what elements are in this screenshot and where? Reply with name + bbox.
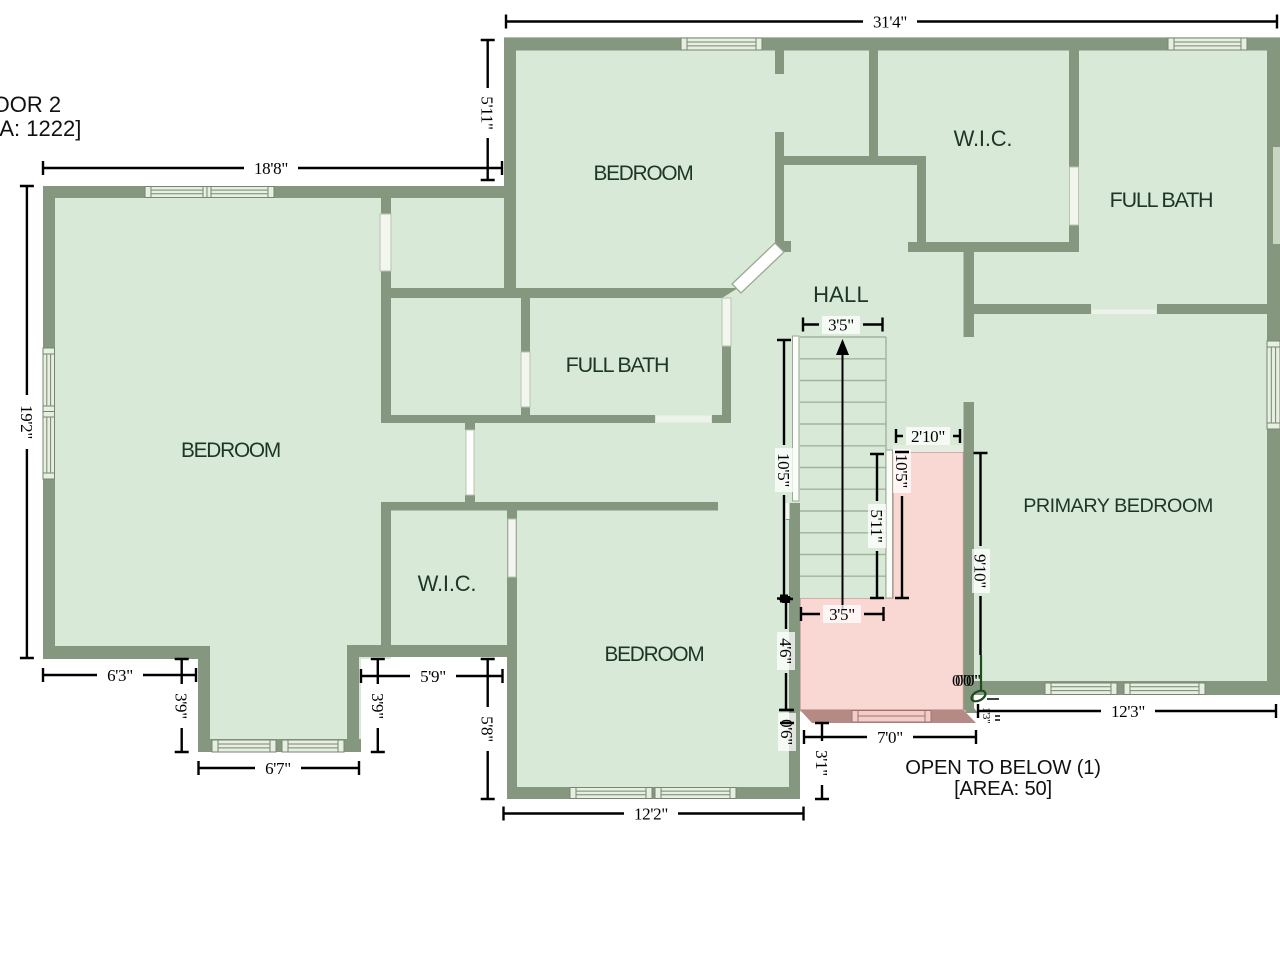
svg-text:FULL BATH: FULL BATH bbox=[1110, 188, 1213, 212]
svg-text:BEDROOM: BEDROOM bbox=[604, 643, 703, 666]
svg-text:W.I.C.: W.I.C. bbox=[954, 126, 1013, 151]
svg-text:BEDROOM: BEDROOM bbox=[181, 439, 280, 462]
svg-text:5'11": 5'11" bbox=[478, 96, 497, 129]
svg-text:HALL: HALL bbox=[813, 282, 869, 307]
svg-text:0'6": 0'6" bbox=[777, 719, 796, 745]
svg-text:1'3": 1'3" bbox=[980, 707, 992, 723]
svg-text:19'2": 19'2" bbox=[17, 405, 36, 439]
svg-text:5'9": 5'9" bbox=[420, 667, 446, 686]
svg-text:BEDROOM: BEDROOM bbox=[593, 162, 692, 185]
svg-text:12'2": 12'2" bbox=[634, 805, 668, 824]
svg-text:3'1": 3'1" bbox=[812, 750, 831, 776]
svg-text:FULL BATH: FULL BATH bbox=[566, 353, 669, 377]
svg-text:18'8": 18'8" bbox=[254, 159, 288, 178]
svg-text:10'5": 10'5" bbox=[774, 453, 793, 487]
svg-text:FLOOR 2: FLOOR 2 bbox=[0, 92, 61, 117]
svg-text:[AREA: 50]: [AREA: 50] bbox=[954, 778, 1052, 800]
svg-text:6'7": 6'7" bbox=[265, 759, 291, 778]
svg-text:5'11": 5'11" bbox=[867, 509, 886, 542]
svg-text:10'5": 10'5" bbox=[892, 454, 911, 488]
svg-text:3'5": 3'5" bbox=[828, 316, 854, 335]
svg-text:OPEN TO BELOW (1): OPEN TO BELOW (1) bbox=[905, 757, 1101, 779]
svg-text:31'4": 31'4" bbox=[873, 13, 907, 32]
svg-text:6'3": 6'3" bbox=[107, 666, 133, 685]
svg-text:0'0": 0'0" bbox=[955, 671, 981, 690]
svg-text:7'0": 7'0" bbox=[877, 728, 903, 747]
svg-text:2'10": 2'10" bbox=[911, 427, 945, 446]
svg-text:[AREA: 1222]: [AREA: 1222] bbox=[0, 116, 81, 141]
svg-text:4'6": 4'6" bbox=[776, 638, 795, 664]
svg-text:PRIMARY BEDROOM: PRIMARY BEDROOM bbox=[1023, 495, 1213, 517]
svg-text:9'10": 9'10" bbox=[971, 554, 990, 588]
svg-text:W.I.C.: W.I.C. bbox=[418, 571, 477, 596]
svg-text:12'3": 12'3" bbox=[1111, 702, 1145, 721]
svg-text:3'9": 3'9" bbox=[368, 693, 387, 719]
svg-text:3'9": 3'9" bbox=[172, 693, 191, 719]
svg-text:3'5": 3'5" bbox=[829, 605, 855, 624]
svg-text:5'8": 5'8" bbox=[478, 716, 497, 742]
